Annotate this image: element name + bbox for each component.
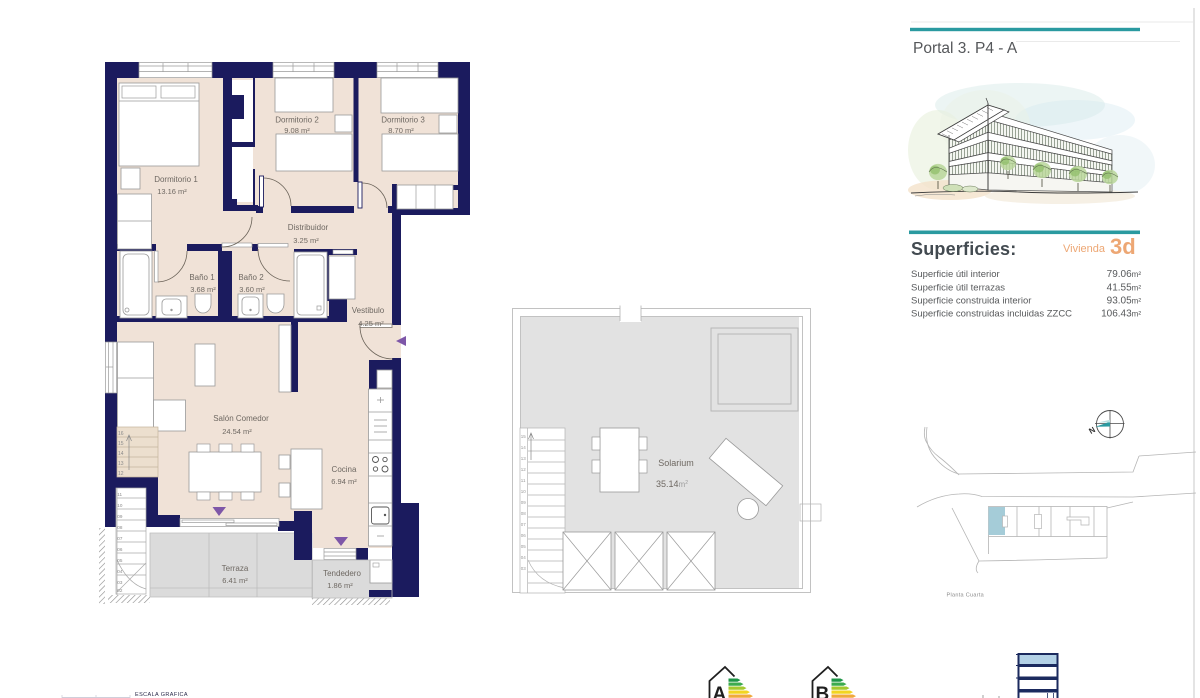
svg-text:106.43m²: 106.43m² <box>1101 309 1141 320</box>
svg-text:08: 08 <box>521 511 527 516</box>
svg-text:Superficie construida interior: Superficie construida interior <box>911 296 1031 307</box>
svg-text:Baño 2: Baño 2 <box>238 273 264 282</box>
svg-text:Dormitorio 3: Dormitorio 3 <box>381 116 425 125</box>
svg-text:3d: 3d <box>1110 234 1136 259</box>
svg-text:Superficie útil interior: Superficie útil interior <box>911 269 1000 280</box>
svg-text:14: 14 <box>118 451 124 457</box>
svg-text:9.08 m²: 9.08 m² <box>284 126 310 135</box>
svg-text:Vestibulo: Vestibulo <box>352 306 385 315</box>
svg-text:02: 02 <box>117 588 123 593</box>
svg-text:10: 10 <box>117 503 123 508</box>
svg-text:6.94 m²: 6.94 m² <box>331 477 357 486</box>
svg-text:Superficie construidas incluid: Superficie construidas incluidas ZZCC <box>911 309 1072 320</box>
svg-text:05: 05 <box>521 544 527 549</box>
svg-text:8.70 m²: 8.70 m² <box>388 126 414 135</box>
svg-text:13.16 m²: 13.16 m² <box>157 187 187 196</box>
svg-text:6.41 m²: 6.41 m² <box>222 576 248 585</box>
svg-text:15: 15 <box>521 434 527 439</box>
svg-text:Dormitorio 1: Dormitorio 1 <box>154 175 198 184</box>
svg-text:Dormitorio 2: Dormitorio 2 <box>275 116 319 125</box>
svg-text:Solarium: Solarium <box>658 458 694 468</box>
svg-text:06: 06 <box>521 533 527 538</box>
svg-text:16: 16 <box>118 431 124 437</box>
svg-text:03: 03 <box>117 580 123 585</box>
svg-text:13: 13 <box>118 461 124 467</box>
svg-text:04: 04 <box>521 555 527 560</box>
svg-text:12: 12 <box>521 467 527 472</box>
svg-text:14: 14 <box>521 445 527 450</box>
svg-text:A: A <box>713 684 727 698</box>
svg-text:ESCALA GRAFICA: ESCALA GRAFICA <box>135 692 188 698</box>
svg-text:05: 05 <box>117 558 123 563</box>
svg-text:11: 11 <box>117 492 122 497</box>
svg-text:Vivienda: Vivienda <box>1063 243 1106 255</box>
svg-text:Superficie útil terrazas: Superficie útil terrazas <box>911 283 1005 294</box>
svg-text:Superficies:: Superficies: <box>911 239 1016 259</box>
svg-text:Terraza: Terraza <box>222 564 249 573</box>
svg-text:09: 09 <box>521 500 527 505</box>
svg-text:03: 03 <box>521 566 527 571</box>
svg-text:07: 07 <box>117 536 123 541</box>
svg-text:B: B <box>816 684 830 698</box>
svg-text:08: 08 <box>117 525 123 530</box>
svg-text:06: 06 <box>117 547 123 552</box>
svg-text:24.54 m²: 24.54 m² <box>222 427 252 436</box>
svg-text:3.25 m²: 3.25 m² <box>293 236 319 245</box>
svg-text:Baño 1: Baño 1 <box>189 273 215 282</box>
svg-text:3.60 m²: 3.60 m² <box>239 285 265 294</box>
svg-text:13: 13 <box>521 456 527 461</box>
svg-text:79.06m²: 79.06m² <box>1107 269 1142 280</box>
svg-text:93.05m²: 93.05m² <box>1107 296 1142 307</box>
svg-text:15: 15 <box>118 441 124 447</box>
svg-text:Salón Comedor: Salón Comedor <box>213 414 269 423</box>
svg-text:4.25 m²: 4.25 m² <box>358 319 384 328</box>
svg-text:04: 04 <box>117 569 123 574</box>
svg-text:12: 12 <box>118 471 124 477</box>
svg-text:3.68 m²: 3.68 m² <box>190 285 216 294</box>
svg-text:Tendedero: Tendedero <box>323 569 361 578</box>
svg-text:09: 09 <box>117 514 123 519</box>
svg-text:Distribuidor: Distribuidor <box>288 223 329 232</box>
svg-text:Cocina: Cocina <box>332 465 357 474</box>
svg-text:Portal 3. P4 - A: Portal 3. P4 - A <box>913 40 1018 57</box>
svg-text:10: 10 <box>521 489 527 494</box>
svg-text:1.86 m²: 1.86 m² <box>327 581 353 590</box>
svg-text:11: 11 <box>521 478 526 483</box>
svg-text:07: 07 <box>521 522 527 527</box>
svg-text:41.55m²: 41.55m² <box>1107 283 1142 294</box>
svg-text:35.14m2: 35.14m2 <box>656 479 688 489</box>
svg-text:Planta Cuarta: Planta Cuarta <box>947 593 985 599</box>
